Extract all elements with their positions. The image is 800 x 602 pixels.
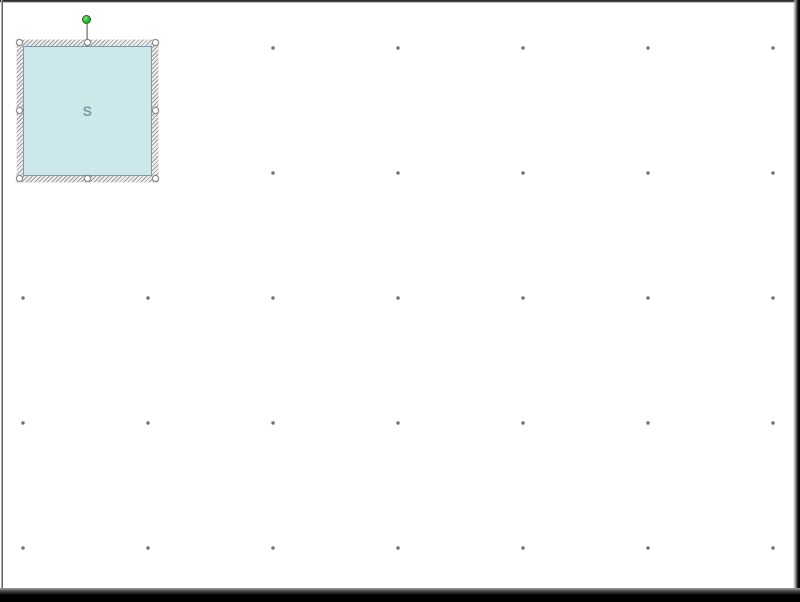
canvas-border-top (0, 0, 800, 3)
grid-dot (771, 546, 775, 550)
grid-dot (521, 171, 525, 175)
grid-dot (646, 171, 650, 175)
grid-dot (646, 46, 650, 50)
resize-handle-bottom-middle[interactable] (84, 175, 91, 182)
grid-dot (21, 421, 25, 425)
grid-dot (271, 296, 275, 300)
resize-handle-bottom-left[interactable] (16, 175, 23, 182)
resize-handle-top-left[interactable] (16, 39, 23, 46)
grid-dot (521, 296, 525, 300)
grid-dot (271, 171, 275, 175)
grid-dot (146, 546, 150, 550)
grid-dot (646, 296, 650, 300)
canvas-border-left (1, 0, 3, 590)
resize-handle-bottom-right[interactable] (152, 175, 159, 182)
editor-window: S (0, 0, 800, 602)
grid-dot (396, 296, 400, 300)
resize-handle-middle-right[interactable] (152, 107, 159, 114)
grid-dot (396, 546, 400, 550)
grid-dot (146, 296, 150, 300)
grid-dot (771, 296, 775, 300)
canvas-border-right (793, 0, 800, 592)
grid-dot (646, 421, 650, 425)
grid-dot (146, 421, 150, 425)
grid-dot (771, 171, 775, 175)
shape-label: S (83, 103, 93, 119)
grid-dot (521, 546, 525, 550)
grid-dot (271, 46, 275, 50)
grid-dot (271, 546, 275, 550)
resize-handle-top-middle[interactable] (84, 39, 91, 46)
grid-dot (396, 46, 400, 50)
grid-dot (771, 46, 775, 50)
rotation-handle[interactable] (82, 15, 91, 24)
grid-dot (521, 46, 525, 50)
resize-handle-top-right[interactable] (152, 39, 159, 46)
grid-dot (21, 546, 25, 550)
grid-dot (21, 296, 25, 300)
grid-dot (396, 421, 400, 425)
resize-handle-middle-left[interactable] (16, 107, 23, 114)
shape-square[interactable]: S (23, 46, 152, 176)
bottom-bar (0, 588, 800, 602)
grid-dot (646, 546, 650, 550)
grid-dot (396, 171, 400, 175)
grid-dot (771, 421, 775, 425)
grid-dot (521, 421, 525, 425)
grid-dot (271, 421, 275, 425)
